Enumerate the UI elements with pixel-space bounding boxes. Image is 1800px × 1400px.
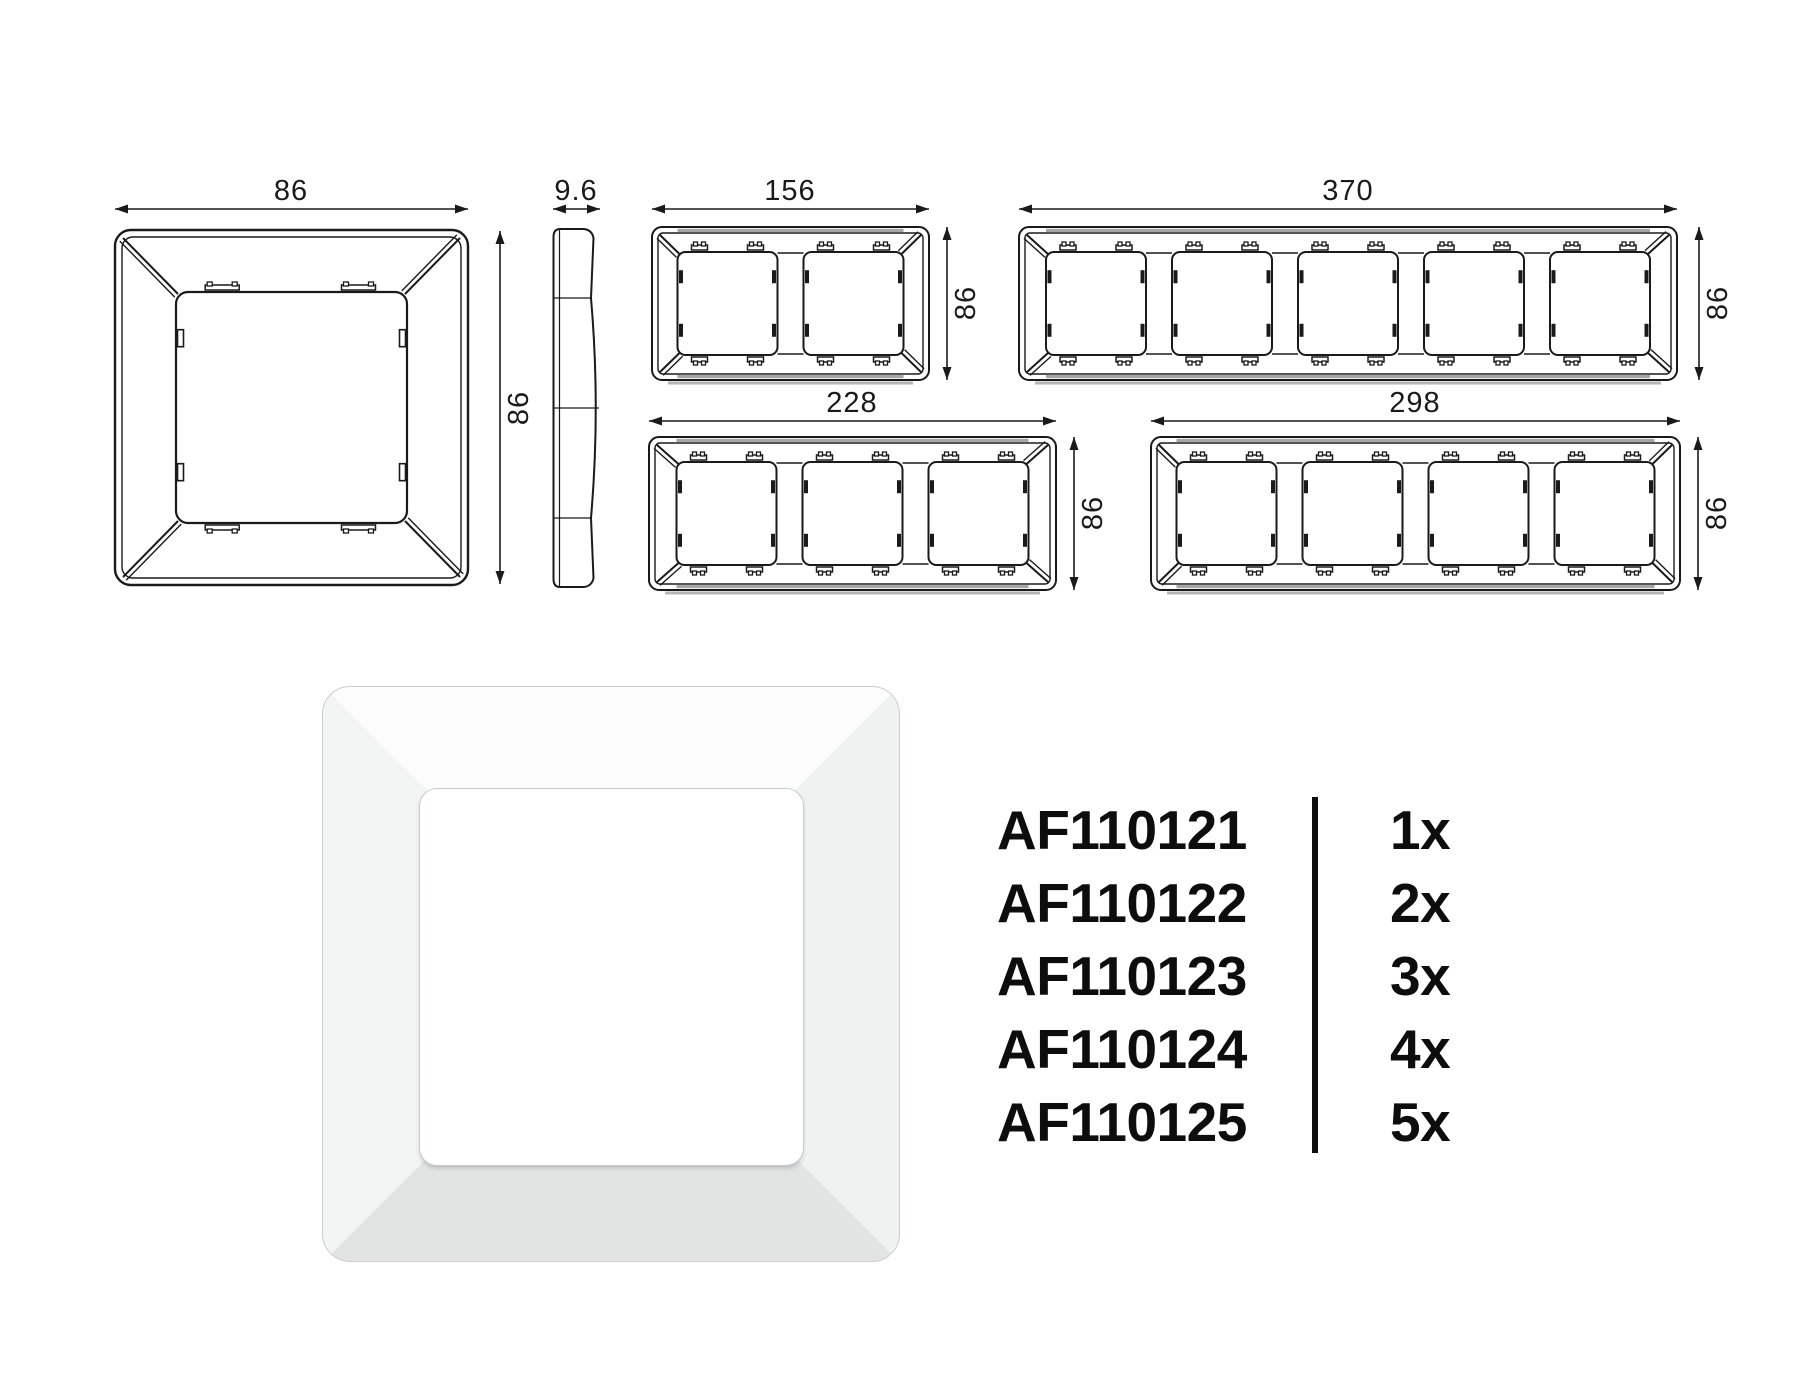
- part-code: AF110125: [997, 1086, 1247, 1159]
- part-qty: 2x: [1390, 867, 1450, 940]
- dim-height-front-view-5gang: 86: [1695, 227, 1735, 380]
- drawing-front-view-5gang: [1019, 227, 1677, 385]
- dim-height-front-view-4gang-label: 86: [1701, 496, 1733, 530]
- product-photo-window: [419, 788, 804, 1166]
- part-qty: 4x: [1390, 1013, 1450, 1086]
- drawing-front-view-1gang: [115, 230, 468, 585]
- drawing-side-view: [554, 229, 600, 587]
- dim-height-front-view-1gang-label: 86: [503, 391, 535, 425]
- dim-width-side-view: 9.6: [553, 175, 600, 214]
- drawing-front-view-2gang: [652, 227, 929, 385]
- drawing-front-view-3gang: [649, 437, 1056, 595]
- spec-sheet: 86 86 9.6 156 86 370 86 228 86 298 86 AF…: [0, 0, 1800, 1400]
- dim-width-front-view-5gang-label: 370: [1322, 175, 1373, 207]
- dim-width-front-view-1gang-label: 86: [274, 175, 308, 207]
- dim-height-front-view-5gang-label: 86: [1702, 286, 1734, 320]
- dim-height-front-view-2gang: 86: [943, 227, 983, 380]
- dim-height-front-view-3gang-label: 86: [1077, 496, 1109, 530]
- parts-list-divider: [1312, 797, 1318, 1153]
- dim-width-front-view-3gang: 228: [649, 387, 1056, 426]
- part-code: AF110121: [997, 794, 1247, 867]
- technical-drawings: 86 86 9.6 156 86 370 86 228 86 298 86: [0, 0, 1800, 1400]
- dim-height-front-view-4gang: 86: [1694, 437, 1734, 590]
- parts-list-codes: AF110121 AF110122 AF110123 AF110124 AF11…: [997, 794, 1247, 1159]
- dim-height-front-view-3gang: 86: [1070, 437, 1110, 590]
- dim-width-front-view-5gang: 370: [1019, 175, 1677, 214]
- dim-width-front-view-3gang-label: 228: [826, 387, 877, 419]
- dim-width-front-view-2gang-label: 156: [764, 175, 815, 207]
- parts-list-quantities: 1x 2x 3x 4x 5x: [1390, 794, 1450, 1159]
- dim-height-front-view-2gang-label: 86: [950, 286, 982, 320]
- dim-width-front-view-4gang: 298: [1151, 387, 1680, 426]
- dim-width-front-view-1gang: 86: [115, 175, 468, 214]
- dim-width-front-view-4gang-label: 298: [1389, 387, 1440, 419]
- part-qty: 1x: [1390, 794, 1450, 867]
- part-code: AF110123: [997, 940, 1247, 1013]
- drawing-front-view-4gang: [1151, 437, 1680, 595]
- part-code: AF110122: [997, 867, 1247, 940]
- product-photo: [322, 686, 900, 1262]
- part-qty: 5x: [1390, 1086, 1450, 1159]
- part-qty: 3x: [1390, 940, 1450, 1013]
- dim-width-side-view-label: 9.6: [554, 175, 597, 207]
- dim-height-front-view-1gang: 86: [496, 231, 536, 584]
- part-code: AF110124: [997, 1013, 1247, 1086]
- dim-width-front-view-2gang: 156: [652, 175, 929, 214]
